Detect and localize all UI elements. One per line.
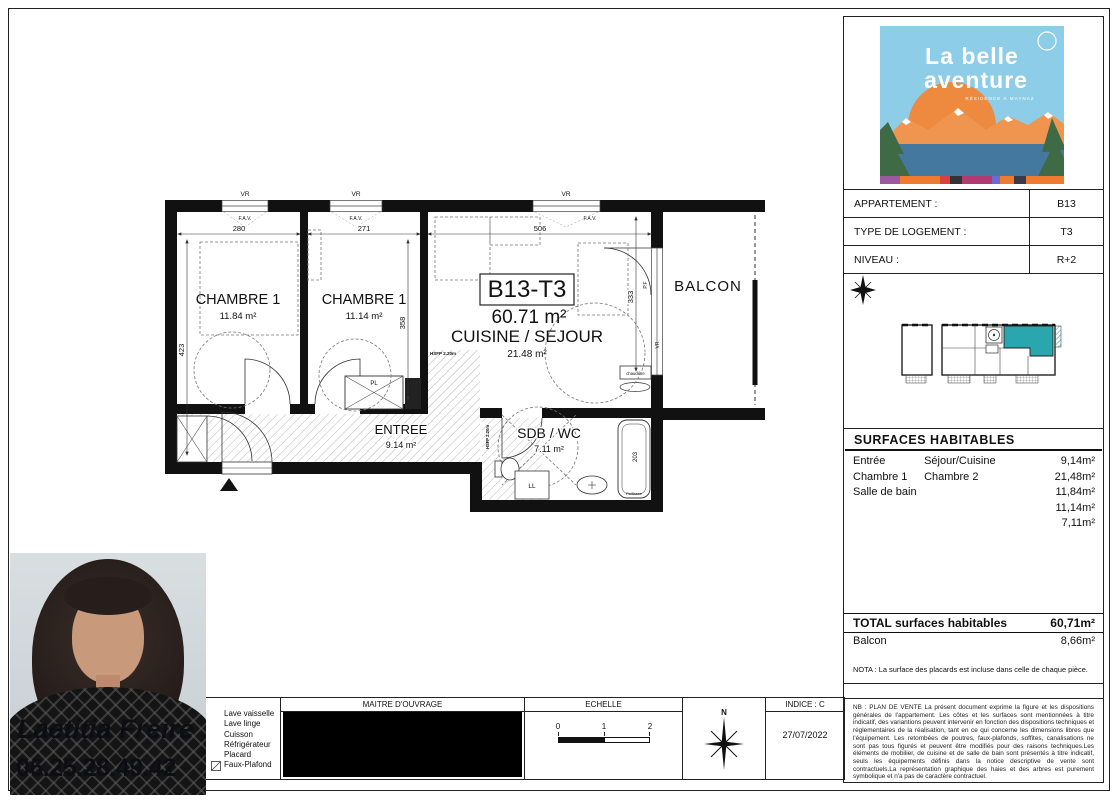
- room-label: Séjour/Cuisine: [924, 455, 996, 467]
- footer-bar: Lave vaisselle Lave linge Cuisson Réfrig…: [196, 697, 845, 780]
- chambre1-area: 11.84 m²: [220, 311, 257, 322]
- legal-note-box: NB : PLAN DE VENTE La présent document e…: [844, 698, 1103, 783]
- info-label: NIVEAU :: [844, 254, 1029, 266]
- entree-label: ENTREE: [375, 422, 428, 437]
- scale-tick-label: 1: [602, 722, 606, 731]
- echelle-cell: ECHELLE 0 1 2: [525, 698, 683, 779]
- chaudiere-tag: chaudière: [626, 371, 645, 376]
- window-chambre1: VR F.A.V.: [222, 191, 268, 227]
- legend-list: Lave vaisselle Lave linge Cuisson Réfrig…: [224, 709, 274, 771]
- balcon-value: 8,66m²: [1061, 635, 1095, 647]
- echelle-header: ECHELLE: [525, 698, 682, 712]
- scale-tick-label: 2: [648, 722, 652, 731]
- hsfp-tag: HSFP 2.20m: [430, 351, 456, 356]
- washing-machine: LL: [515, 471, 549, 499]
- total-section: TOTAL surfaces habitables 60,71m² Balcon…: [844, 613, 1103, 647]
- unit-id: B13-T3: [488, 276, 567, 303]
- nota-text: NOTA : La surface des placards est inclu…: [853, 665, 1093, 674]
- info-row-niveau: NIVEAU : R+2: [844, 245, 1103, 274]
- surface-value: 11,84m²: [1027, 485, 1095, 501]
- brand-logo: La belle aventure RÉSIDENCE À MAYNAZ: [880, 26, 1064, 184]
- porte-fenetre: [604, 248, 663, 375]
- sink: [577, 476, 607, 494]
- logo-color-stripe: [880, 176, 1064, 184]
- info-label: TYPE DE LOGEMENT :: [844, 226, 1029, 238]
- dim-271: 271: [358, 224, 371, 233]
- fav-tag: F.A.V.: [350, 216, 363, 222]
- equipment-legend: Lave vaisselle Lave linge Cuisson Réfrig…: [197, 698, 281, 779]
- vr-tag: VR: [351, 191, 360, 198]
- fav-tag: F.A.V.: [239, 216, 252, 222]
- scale-bar: 0 1 2: [558, 722, 650, 752]
- list-item: Placard: [224, 750, 274, 760]
- faux-plafond-symbol-icon: [211, 761, 221, 771]
- maitre-douvrage-cell: MAITRE D'OUVRAGE: [281, 698, 525, 779]
- legal-note-text: NB : PLAN DE VENTE La présent document e…: [844, 699, 1103, 786]
- entrance-arrow: [220, 478, 238, 491]
- agent-name: Laetitia Freire: [17, 714, 194, 745]
- maitre-douvrage-header: MAITRE D'OUVRAGE: [281, 698, 524, 712]
- surface-value: 21,48m²: [1027, 470, 1095, 486]
- pf-tag: P.F: [643, 281, 649, 288]
- room-label: Entrée: [853, 454, 921, 470]
- room-label: Salle de bain: [853, 485, 921, 501]
- divider: [844, 683, 1103, 684]
- scale-bar-open: [604, 737, 650, 743]
- surfaces-values: 9,14m² 21,48m² 11,84m² 11,14m² 7,11m²: [1027, 454, 1095, 532]
- entree-area: 9.14 m²: [386, 440, 417, 450]
- room-label: Chambre 1: [853, 470, 921, 486]
- placard-box: PL: [345, 376, 403, 409]
- balcony-rail: [753, 215, 758, 405]
- total-label: TOTAL surfaces habitables: [853, 616, 1007, 630]
- table-row: Chambre 1 Chambre 2: [853, 470, 1027, 486]
- fav-tag: F.A.V.: [584, 216, 597, 222]
- list-item: Lave vaisselle: [224, 709, 274, 719]
- dim-333: 333: [626, 291, 635, 304]
- agent-phone: 06.25.28.49.42: [16, 754, 176, 783]
- bathtub: 203 Paillasse: [618, 420, 650, 498]
- elec-box: [405, 378, 421, 409]
- redacted-logo-box: [283, 712, 522, 777]
- chambre1-label: CHAMBRE 1: [196, 292, 281, 308]
- vr-tag: VR: [240, 191, 249, 198]
- scale-tick-label: 0: [556, 722, 560, 731]
- floor-plan: VR F.A.V. VR F.A.V. VR F.A.V.: [150, 185, 800, 545]
- sejour-label: CUISINE / SEJOUR: [451, 327, 603, 346]
- logo-subtitle: RÉSIDENCE À MAYNAZ: [965, 95, 1034, 101]
- surface-value: 9,14m²: [1027, 454, 1095, 470]
- info-value: T3: [1029, 218, 1103, 245]
- window-sejour: VR F.A.V.: [533, 191, 600, 227]
- info-value: B13: [1029, 190, 1103, 217]
- north-star-icon: [850, 275, 876, 305]
- sdb-area: 7.11 m²: [534, 444, 564, 454]
- agent-photo: Laetitia Freire 06.25.28.49.42: [10, 553, 206, 795]
- surfaces-table: Entrée Séjour/Cuisine Chambre 1 Chambre …: [844, 451, 1103, 532]
- sejour-area: 21.48 m²: [507, 349, 547, 360]
- balcon-label: BALCON: [674, 278, 742, 295]
- dim-280: 280: [233, 224, 246, 233]
- compass-icon: N: [702, 706, 746, 772]
- bath-dim: 203: [633, 451, 639, 462]
- windows: VR F.A.V. VR F.A.V. VR F.A.V.: [222, 191, 663, 375]
- info-row-appartement: APPARTEMENT : B13: [844, 189, 1103, 217]
- sdb-label: SDB / WC: [517, 425, 581, 441]
- info-row-type: TYPE DE LOGEMENT : T3: [844, 217, 1103, 245]
- total-value: 60,71m²: [1050, 616, 1095, 630]
- balcon-row: Balcon 8,66m²: [844, 633, 1103, 647]
- surface-value: 11,14m²: [1027, 501, 1095, 517]
- ll-tag: LL: [528, 483, 536, 490]
- hsfp-tag-vertical: HSFP 2.20m: [485, 425, 490, 449]
- logo-line2: aventure: [924, 67, 1028, 93]
- indice-header: INDICE : C: [766, 698, 844, 712]
- window-chambre2: VR F.A.V.: [330, 191, 382, 227]
- chaudiere-box: chaudière: [620, 366, 651, 392]
- compass-cell: N: [683, 698, 766, 779]
- revision-date: 27/07/2022: [766, 730, 844, 740]
- pl-tag: PL: [370, 381, 378, 387]
- chambre2-label: CHAMBRE 1: [322, 292, 407, 308]
- svg-text:N: N: [721, 708, 727, 717]
- vr-tag: VR: [561, 191, 570, 198]
- key-plan: [900, 317, 1062, 387]
- list-item: Faux-Plafond: [224, 760, 274, 770]
- info-label: APPARTEMENT :: [844, 198, 1029, 210]
- info-value: R+2: [1029, 246, 1103, 273]
- dim-358: 358: [398, 317, 407, 330]
- surfaces-labels: Entrée Séjour/Cuisine Chambre 1 Chambre …: [853, 454, 1027, 532]
- dim-506: 506: [534, 224, 547, 233]
- paillasse-tag: Paillasse: [626, 491, 643, 496]
- surfaces-section: SURFACES HABITABLES Entrée Séjour/Cuisin…: [844, 428, 1103, 532]
- balcon-label: Balcon: [853, 635, 887, 647]
- list-item: Réfrigérateur: [224, 740, 274, 750]
- surfaces-title: SURFACES HABITABLES: [845, 429, 1102, 451]
- chambre2-area: 11.14 m²: [346, 311, 383, 322]
- indice-cell: INDICE : C 27/07/2022: [766, 698, 844, 779]
- apartment-info: APPARTEMENT : B13 TYPE DE LOGEMENT : T3 …: [844, 189, 1103, 274]
- list-item: Cuisson: [224, 730, 274, 740]
- unit-total-area: 60.71 m²: [492, 307, 567, 328]
- table-row: Salle de bain: [853, 485, 1027, 501]
- room-label: Chambre 2: [924, 471, 978, 483]
- surface-value: 7,11m²: [1027, 516, 1095, 532]
- portrait-fringe: [64, 577, 152, 615]
- list-item: Lave linge: [224, 719, 274, 729]
- title-block: La belle aventure RÉSIDENCE À MAYNAZ APP…: [843, 16, 1104, 783]
- dim-423: 423: [177, 344, 186, 357]
- total-row: TOTAL surfaces habitables 60,71m²: [844, 613, 1103, 633]
- table-row: Entrée Séjour/Cuisine: [853, 454, 1027, 470]
- vr-vertical-tag: VR: [655, 341, 661, 348]
- logo-line1: La belle: [925, 43, 1019, 69]
- scale-bar-filled: [558, 737, 604, 743]
- unit-balcony-hatch: [1055, 326, 1061, 347]
